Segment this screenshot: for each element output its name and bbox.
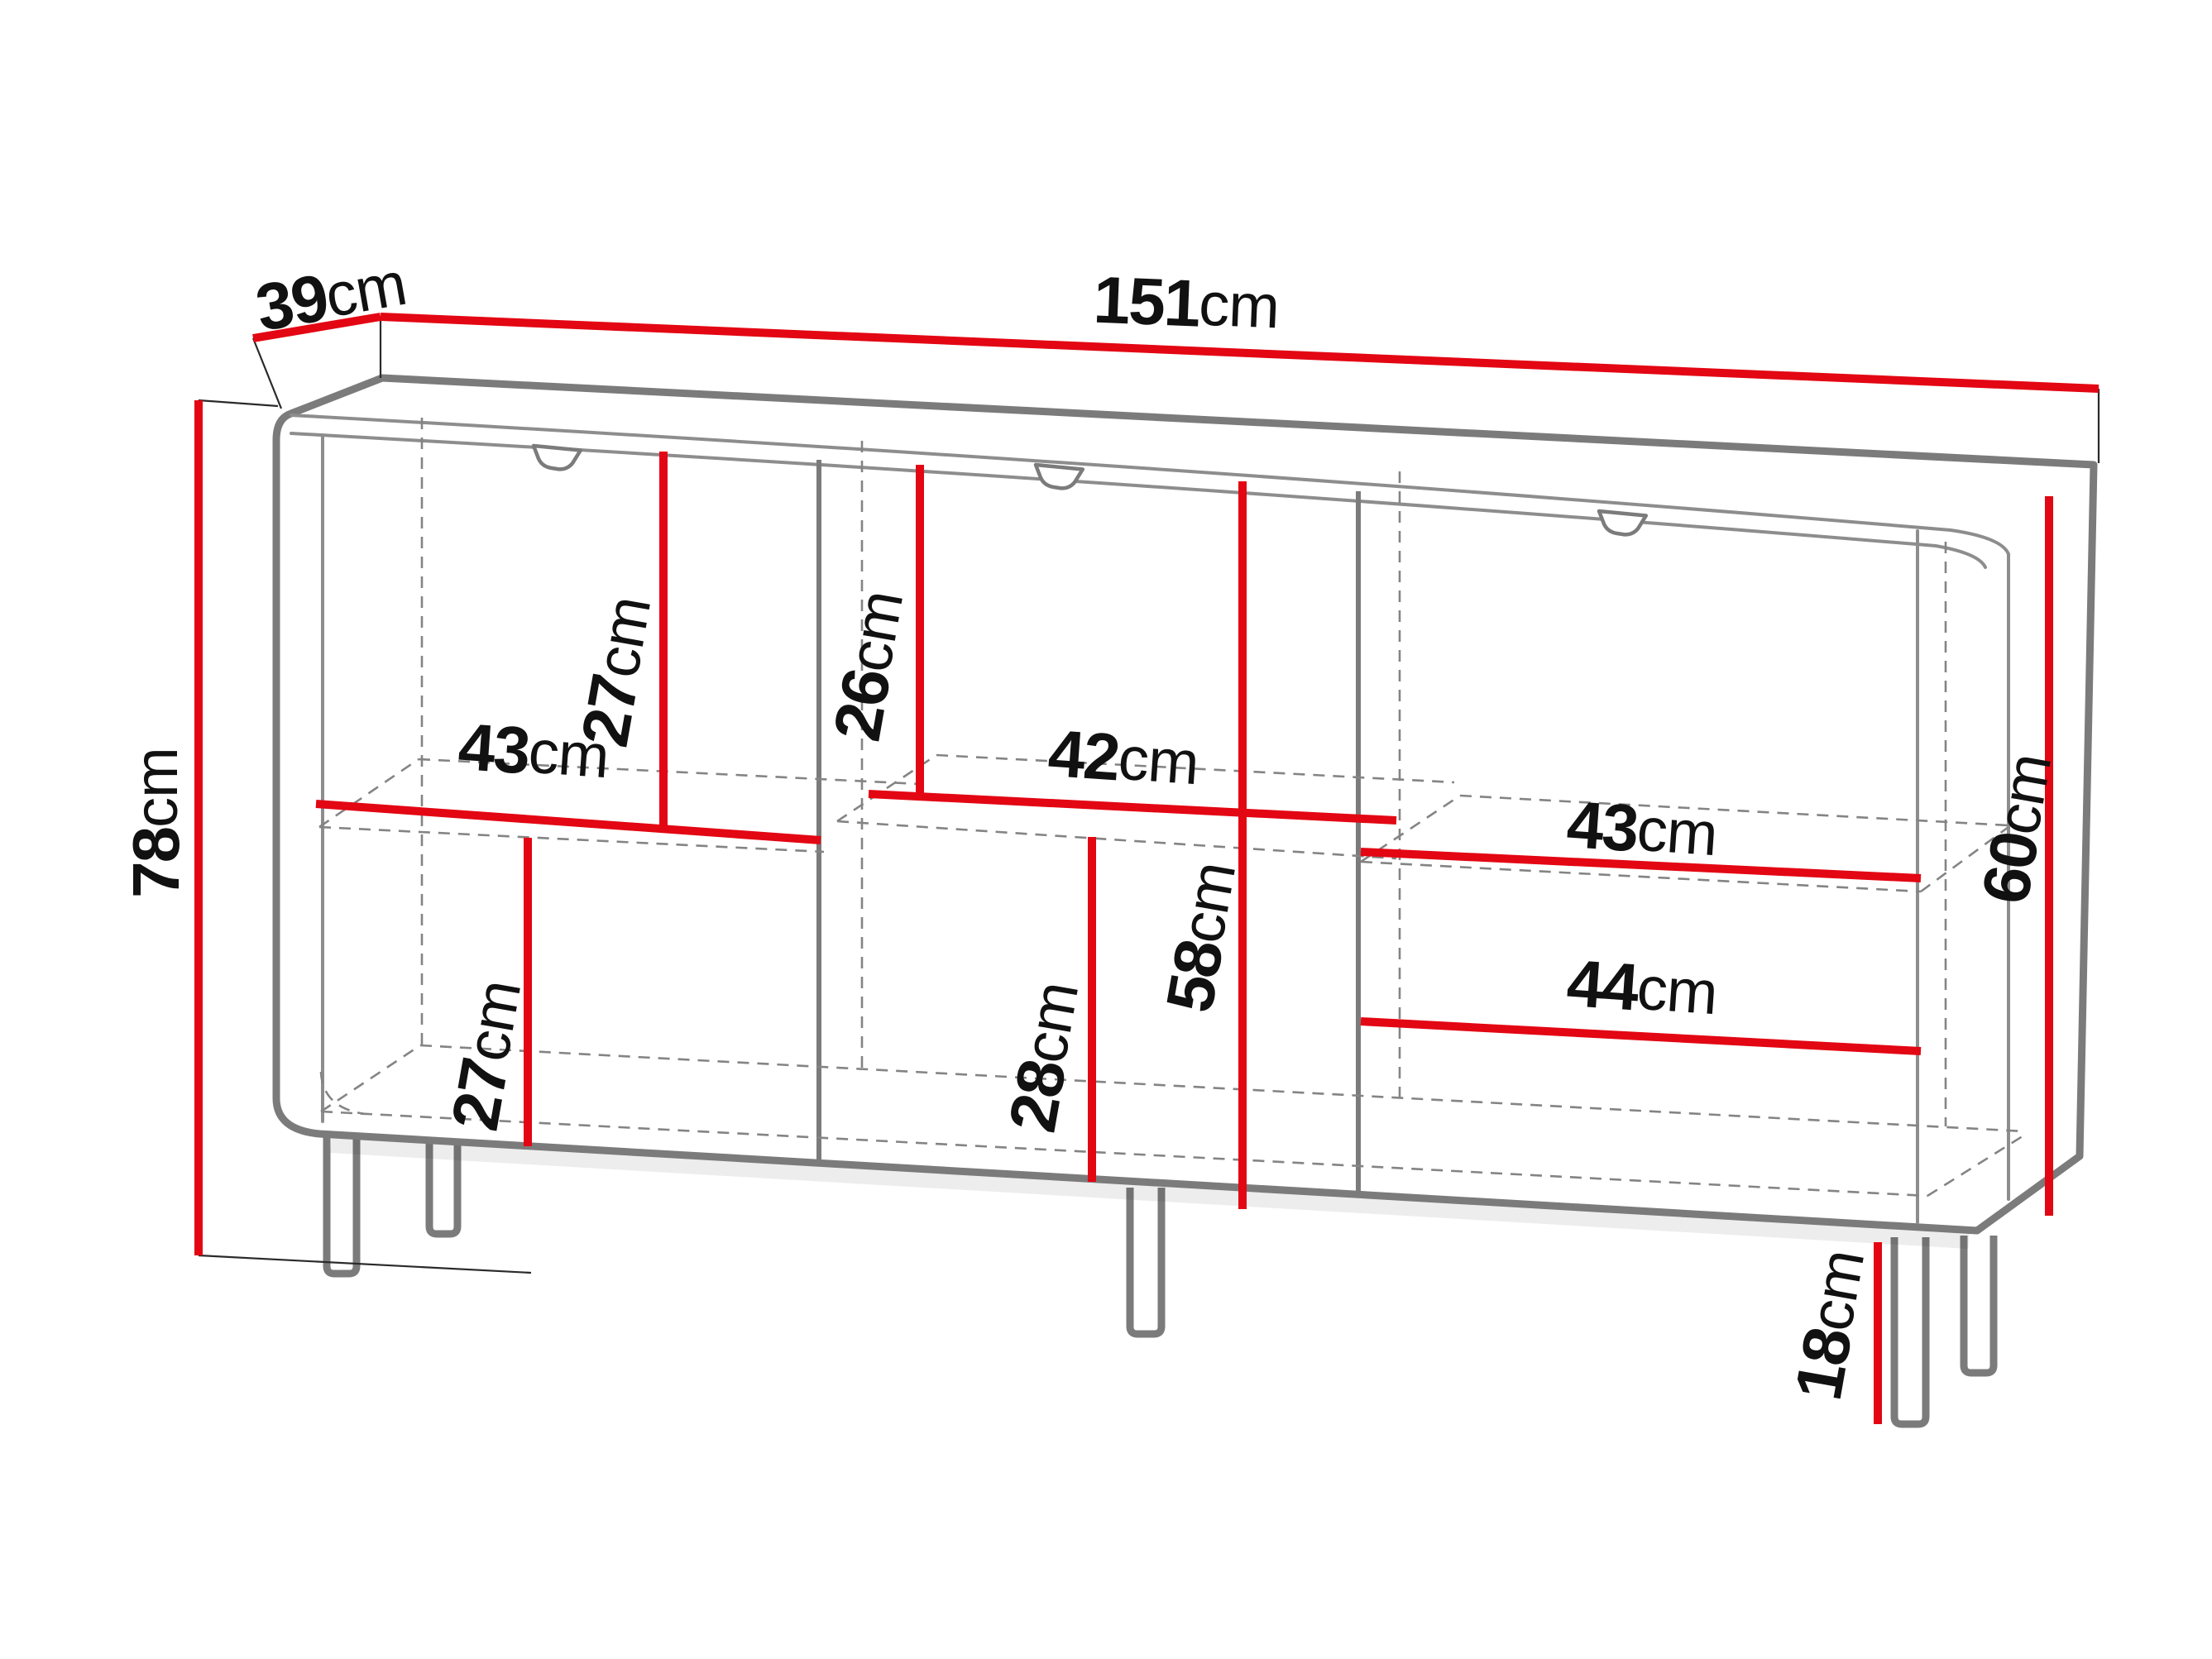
label-depth: 39cm <box>251 246 411 344</box>
cabinet-body-outline <box>276 378 2094 1231</box>
label-width: 151cm <box>1092 262 1281 343</box>
ext-line-depth-left <box>253 338 281 409</box>
leg-front-right <box>1894 1237 1926 1424</box>
label-leg-height: 18cm <box>1780 1245 1879 1405</box>
label-right-drawer-width: 44cm <box>1564 945 1719 1029</box>
leg-back-right <box>1964 1236 1994 1373</box>
ext-line-height-top <box>199 400 278 406</box>
ext-line-height-bottom <box>199 1255 531 1273</box>
dimension-diagram: 39cm 151cm 78cm 27cm 43cm 27cm 26cm 42cm… <box>0 0 2212 1659</box>
leg-middle <box>1130 1188 1161 1334</box>
label-middle-shelf-width: 42cm <box>1046 715 1200 799</box>
label-height: 78cm <box>119 748 193 898</box>
label-right-shelf-width: 43cm <box>1564 786 1719 870</box>
label-left-shelf-width: 43cm <box>456 709 610 792</box>
